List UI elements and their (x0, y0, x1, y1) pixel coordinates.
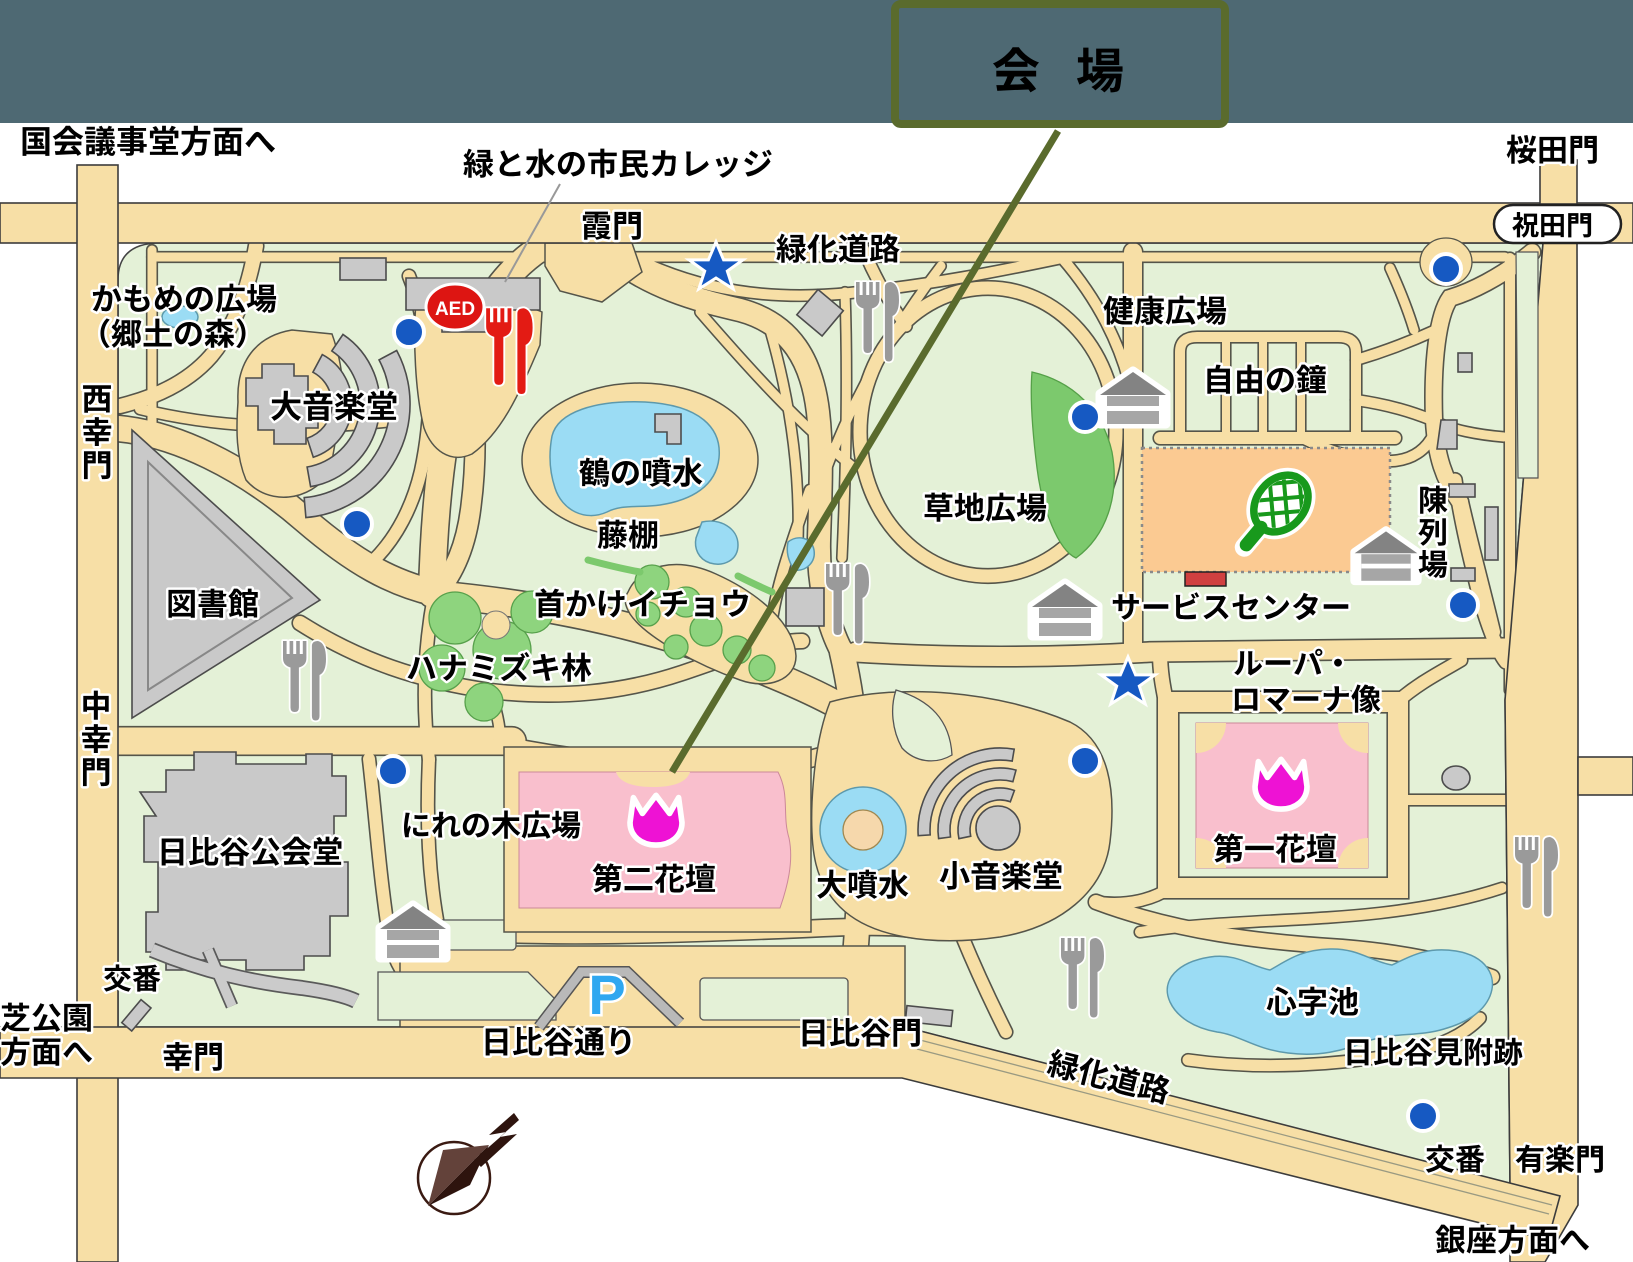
svg-text:P: P (588, 963, 625, 1026)
svg-text:AED: AED (435, 299, 475, 320)
